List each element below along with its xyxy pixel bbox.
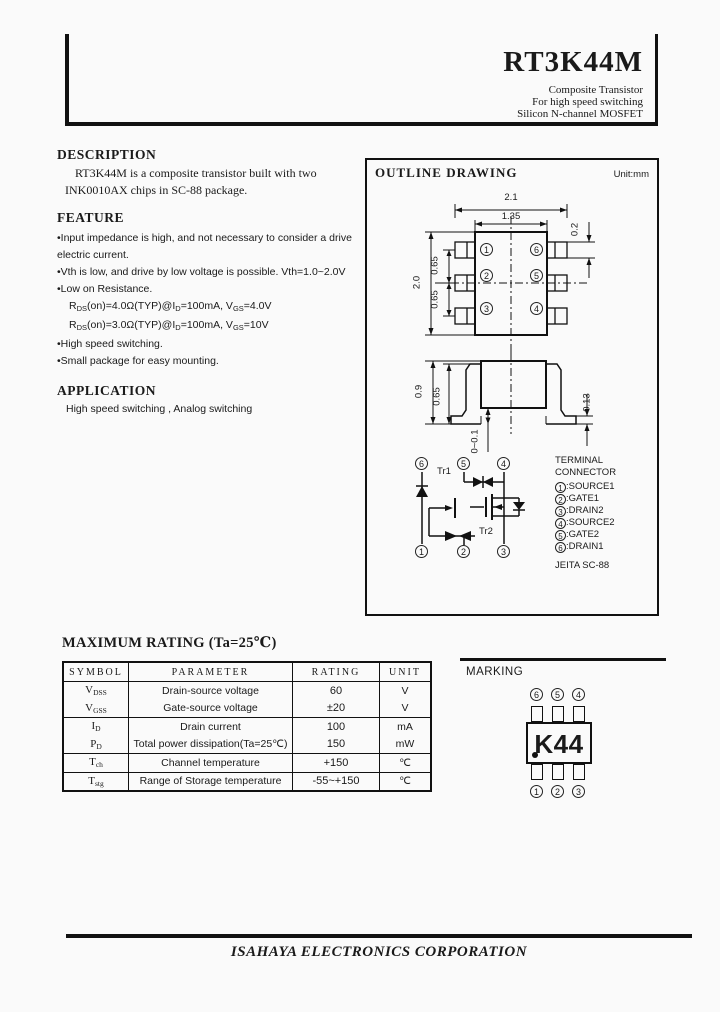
feature-item: •Input impedance is high, and not necess… xyxy=(57,230,352,247)
dim-overall-width: 2.1 xyxy=(489,192,533,203)
package-lead xyxy=(552,706,564,722)
dim-body-width: 1.35 xyxy=(489,211,533,222)
marking-heading: MARKING xyxy=(466,666,523,678)
col-symbol: SYMBOL xyxy=(63,662,129,682)
description-line: RT3K44M is a composite transistor built … xyxy=(65,165,317,182)
company-name: ISAHAYA ELECTRONICS CORPORATION xyxy=(66,944,692,961)
dim-pin-pitch: 0.65 xyxy=(430,278,441,322)
table-row: VDSS Drain-source voltage 60 V xyxy=(63,682,431,700)
package-lead xyxy=(573,764,585,780)
terminal-connector-item: 4:SOURCE2 xyxy=(555,517,615,529)
subtitle-line: For high speed switching xyxy=(517,96,643,108)
pin-number: 1 xyxy=(480,243,493,256)
pin-number: 6 xyxy=(530,688,543,701)
terminal-number: 5 xyxy=(457,457,470,470)
terminal-number: 6 xyxy=(415,457,428,470)
feature-heading: FEATURE xyxy=(57,210,124,226)
transistor-label-tr1: Tr1 xyxy=(437,466,451,477)
feature-item: •Small package for easy mounting. xyxy=(57,353,352,370)
pin-number: 5 xyxy=(551,688,564,701)
table-row: Tstg Range of Storage temperature -55~+1… xyxy=(63,772,431,791)
section-divider xyxy=(460,658,666,661)
feature-item: electric current. xyxy=(57,247,352,264)
maximum-rating-table: SYMBOL PARAMETER RATING UNIT VDSS Drain-… xyxy=(62,661,432,792)
dim-standoff: 0~0.1 xyxy=(470,420,481,464)
terminal-number: 4 xyxy=(497,457,510,470)
datasheet-page: RT3K44M Composite Transistor For high sp… xyxy=(0,0,720,1012)
feature-item: •High speed switching. xyxy=(57,336,352,353)
package-lead xyxy=(531,706,543,722)
feature-item: •Vth is low, and drive by low voltage is… xyxy=(57,264,352,281)
pin-number: 4 xyxy=(530,302,543,315)
transistor-label-tr2: Tr2 xyxy=(479,526,493,537)
feature-item: •Low on Resistance. xyxy=(57,281,352,298)
dim-overall-height: 2.0 xyxy=(412,261,423,305)
terminal-connector-title: CONNECTOR xyxy=(555,467,616,478)
header-subtitles: Composite Transistor For high speed swit… xyxy=(517,84,643,120)
subtitle-line: Silicon N-channel MOSFET xyxy=(517,108,643,120)
jeita-package-code: JEITA SC-88 xyxy=(555,560,609,571)
header-box: RT3K44M Composite Transistor For high sp… xyxy=(65,34,658,126)
pin-number: 2 xyxy=(551,785,564,798)
package-lead xyxy=(552,764,564,780)
description-text: RT3K44M is a composite transistor built … xyxy=(65,165,317,199)
subtitle-line: Composite Transistor xyxy=(517,84,643,96)
pin-number: 6 xyxy=(530,243,543,256)
pin-number: 2 xyxy=(480,269,493,282)
table-row: PD Total power dissipation(Ta=25℃) 150 m… xyxy=(63,736,431,754)
terminal-number: 1 xyxy=(415,545,428,558)
terminal-connector-item: 3:DRAIN2 xyxy=(555,505,603,517)
dim-lead-width: 0.2 xyxy=(570,208,581,252)
maximum-rating-heading: MAXIMUM RATING (Ta=25℃) xyxy=(62,634,277,652)
outline-linework xyxy=(367,160,657,612)
pin-number: 3 xyxy=(480,302,493,315)
package-lead xyxy=(573,706,585,722)
terminal-number: 3 xyxy=(497,545,510,558)
pin-number: 4 xyxy=(572,688,585,701)
pin-number: 1 xyxy=(530,785,543,798)
terminal-connector-item: 5:GATE2 xyxy=(555,529,599,541)
col-parameter: PARAMETER xyxy=(129,662,293,682)
feature-list: •Input impedance is high, and not necess… xyxy=(57,230,352,370)
pin1-indicator-dot xyxy=(532,752,538,758)
package-lead xyxy=(531,764,543,780)
feature-item-rds1: RDS(on)=4.0Ω(TYP)@ID=100mA, VGS=4.0V xyxy=(57,298,352,317)
application-heading: APPLICATION xyxy=(57,383,156,399)
table-row: Tch Channel temperature +150 ℃ xyxy=(63,754,431,773)
description-heading: DESCRIPTION xyxy=(57,147,156,163)
footer-rule xyxy=(66,934,692,938)
application-text: High speed switching , Analog switching xyxy=(66,401,252,418)
terminal-connector-item: 6:DRAIN1 xyxy=(555,541,603,553)
terminal-connector-item: 2:GATE1 xyxy=(555,493,599,505)
marking-section: MARKING 6 5 4 K44 1 2 3 xyxy=(460,650,666,810)
outline-drawing-box: OUTLINE DRAWING Unit:mm xyxy=(365,158,659,616)
pin-number: 3 xyxy=(572,785,585,798)
col-rating: RATING xyxy=(293,662,380,682)
dim-total-height: 0.9 xyxy=(414,370,425,414)
part-number-title: RT3K44M xyxy=(503,46,643,79)
dim-body-height: 0.65 xyxy=(432,375,443,419)
description-line: INK0010AX chips in SC-88 package. xyxy=(65,182,317,199)
col-unit: UNIT xyxy=(380,662,432,682)
table-row: ID Drain current 100 mA xyxy=(63,718,431,736)
pin-number: 5 xyxy=(530,269,543,282)
feature-item-rds2: RDS(on)=3.0Ω(TYP)@ID=100mA, VGS=10V xyxy=(57,317,352,336)
terminal-number: 2 xyxy=(457,545,470,558)
marking-code: K44 xyxy=(528,724,590,764)
terminal-connector-item: 1:SOURCE1 xyxy=(555,481,615,493)
table-row: VGSS Gate-source voltage ±20 V xyxy=(63,700,431,718)
table-header-row: SYMBOL PARAMETER RATING UNIT xyxy=(63,662,431,682)
terminal-connector-title: TERMINAL xyxy=(555,455,603,466)
dim-lead-thickness: 0.13 xyxy=(582,381,593,425)
